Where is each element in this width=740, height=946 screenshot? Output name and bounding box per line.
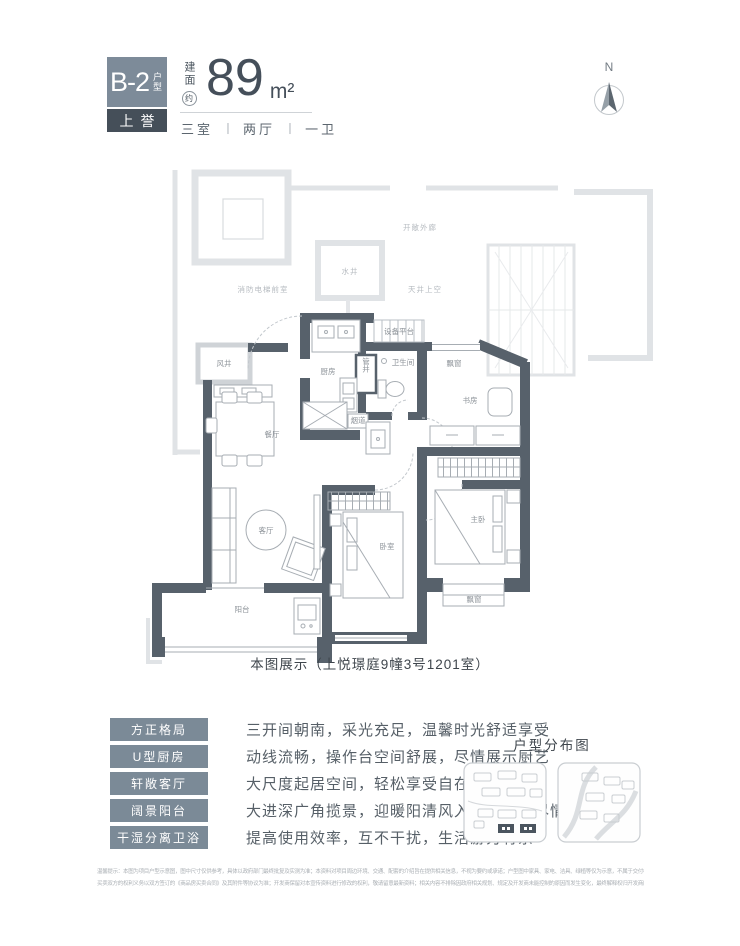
floor-plan: 开敞外廊 水井 消防电梯前室 天井上空 风井 设备平台 xyxy=(90,150,660,665)
brand-char-2: 誉 xyxy=(141,111,155,131)
open-corridor-label: 开敞外廊 xyxy=(403,222,437,232)
distribution-title: 户型分布图 xyxy=(462,734,642,754)
bay-window-top-label: 飘窗 xyxy=(447,358,462,368)
halls-count: 两厅 xyxy=(243,119,275,138)
unit-code: B-2 xyxy=(110,67,149,98)
balcony-label: 阳台 xyxy=(235,604,250,614)
baths-count: 一卫 xyxy=(305,119,337,138)
site-panel-left xyxy=(464,763,546,842)
highlighted-building xyxy=(498,824,514,833)
plan-caption: 本图展示（上悦璟庭9幢3号1201室） xyxy=(0,653,740,673)
study-bay-window xyxy=(432,343,480,352)
disclaimer: 温馨提示：本图为项目户型示意图，图中尺寸仅供参考，具体以政府部门最终批复及实测为… xyxy=(97,867,644,890)
kitchen-label: 厨房 xyxy=(321,366,336,376)
master-bedroom-label: 主卧 xyxy=(471,514,486,524)
rooms-count: 三室 xyxy=(181,119,213,138)
brand-char-1: 上 xyxy=(120,111,134,131)
area-approx-circle: 约 xyxy=(182,91,197,106)
dining-label: 餐厅 xyxy=(265,430,280,439)
equipment-platform-label: 设备平台 xyxy=(384,326,414,336)
header-divider xyxy=(180,112,312,113)
compass-north-label: N xyxy=(589,60,629,74)
dining-furniture xyxy=(206,385,274,466)
area-value: 89 xyxy=(206,54,264,103)
feature-tag: 阔景阳台 xyxy=(110,799,208,822)
separator: 丨 xyxy=(284,120,296,137)
highlighted-building xyxy=(520,824,536,833)
separator: 丨 xyxy=(222,120,234,137)
air-shaft-label: 风井 xyxy=(217,358,232,368)
study-label: 书房 xyxy=(463,395,478,405)
bay-window-bottom-label: 飘窗 xyxy=(467,594,482,604)
unit-code-box: B-2 户型 xyxy=(107,57,167,107)
compass: N xyxy=(589,60,629,124)
lightwell-label: 天井上空 xyxy=(408,284,442,294)
pipe-shaft-label: 管井 xyxy=(361,356,370,374)
distribution-map: 户型分布图 xyxy=(462,734,642,850)
site-panel-right xyxy=(558,763,640,842)
unit-type-badge: B-2 户型 上 誉 xyxy=(107,57,167,132)
living-label: 客厅 xyxy=(259,525,274,535)
master-furniture xyxy=(435,458,520,564)
compass-icon xyxy=(589,75,629,119)
layout-summary: 三室 丨 两厅 丨 一卫 xyxy=(181,119,337,138)
water-shaft-label: 水井 xyxy=(342,266,359,276)
bathroom-label: 卫生间 xyxy=(392,357,415,367)
feature-tag: 干湿分离卫浴 xyxy=(110,826,208,849)
unit-code-suffix: 户型 xyxy=(151,72,164,92)
distribution-map-graphic xyxy=(462,761,642,845)
area-label: 建面 约 xyxy=(181,61,197,106)
flue-label: 烟道 xyxy=(351,415,366,425)
area-unit: m² xyxy=(270,80,295,104)
feature-tag: U型厨房 xyxy=(110,745,208,768)
feature-tag: 方正格局 xyxy=(110,718,208,741)
area-block: 建面 约 89 m² xyxy=(181,54,294,106)
balcony-fixtures xyxy=(294,598,320,634)
disclaimer-line-2: 买卖双方的权利义务以双方签订的《商品房买卖合同》及其附件等协议为准；开发商保留对… xyxy=(97,879,644,891)
bedroom-label: 卧室 xyxy=(380,541,395,551)
living-furniture xyxy=(212,488,325,583)
disclaimer-line-1: 温馨提示：本图为项目户型示意图，图中尺寸仅供参考，具体以政府部门最终批复及实测为… xyxy=(97,867,644,879)
fire-elevator-lobby-label: 消防电梯前室 xyxy=(238,284,289,294)
feature-tag: 轩敞客厅 xyxy=(110,772,208,795)
brand-badge: 上 誉 xyxy=(107,109,167,132)
area-label-vertical: 建面 xyxy=(181,61,197,87)
